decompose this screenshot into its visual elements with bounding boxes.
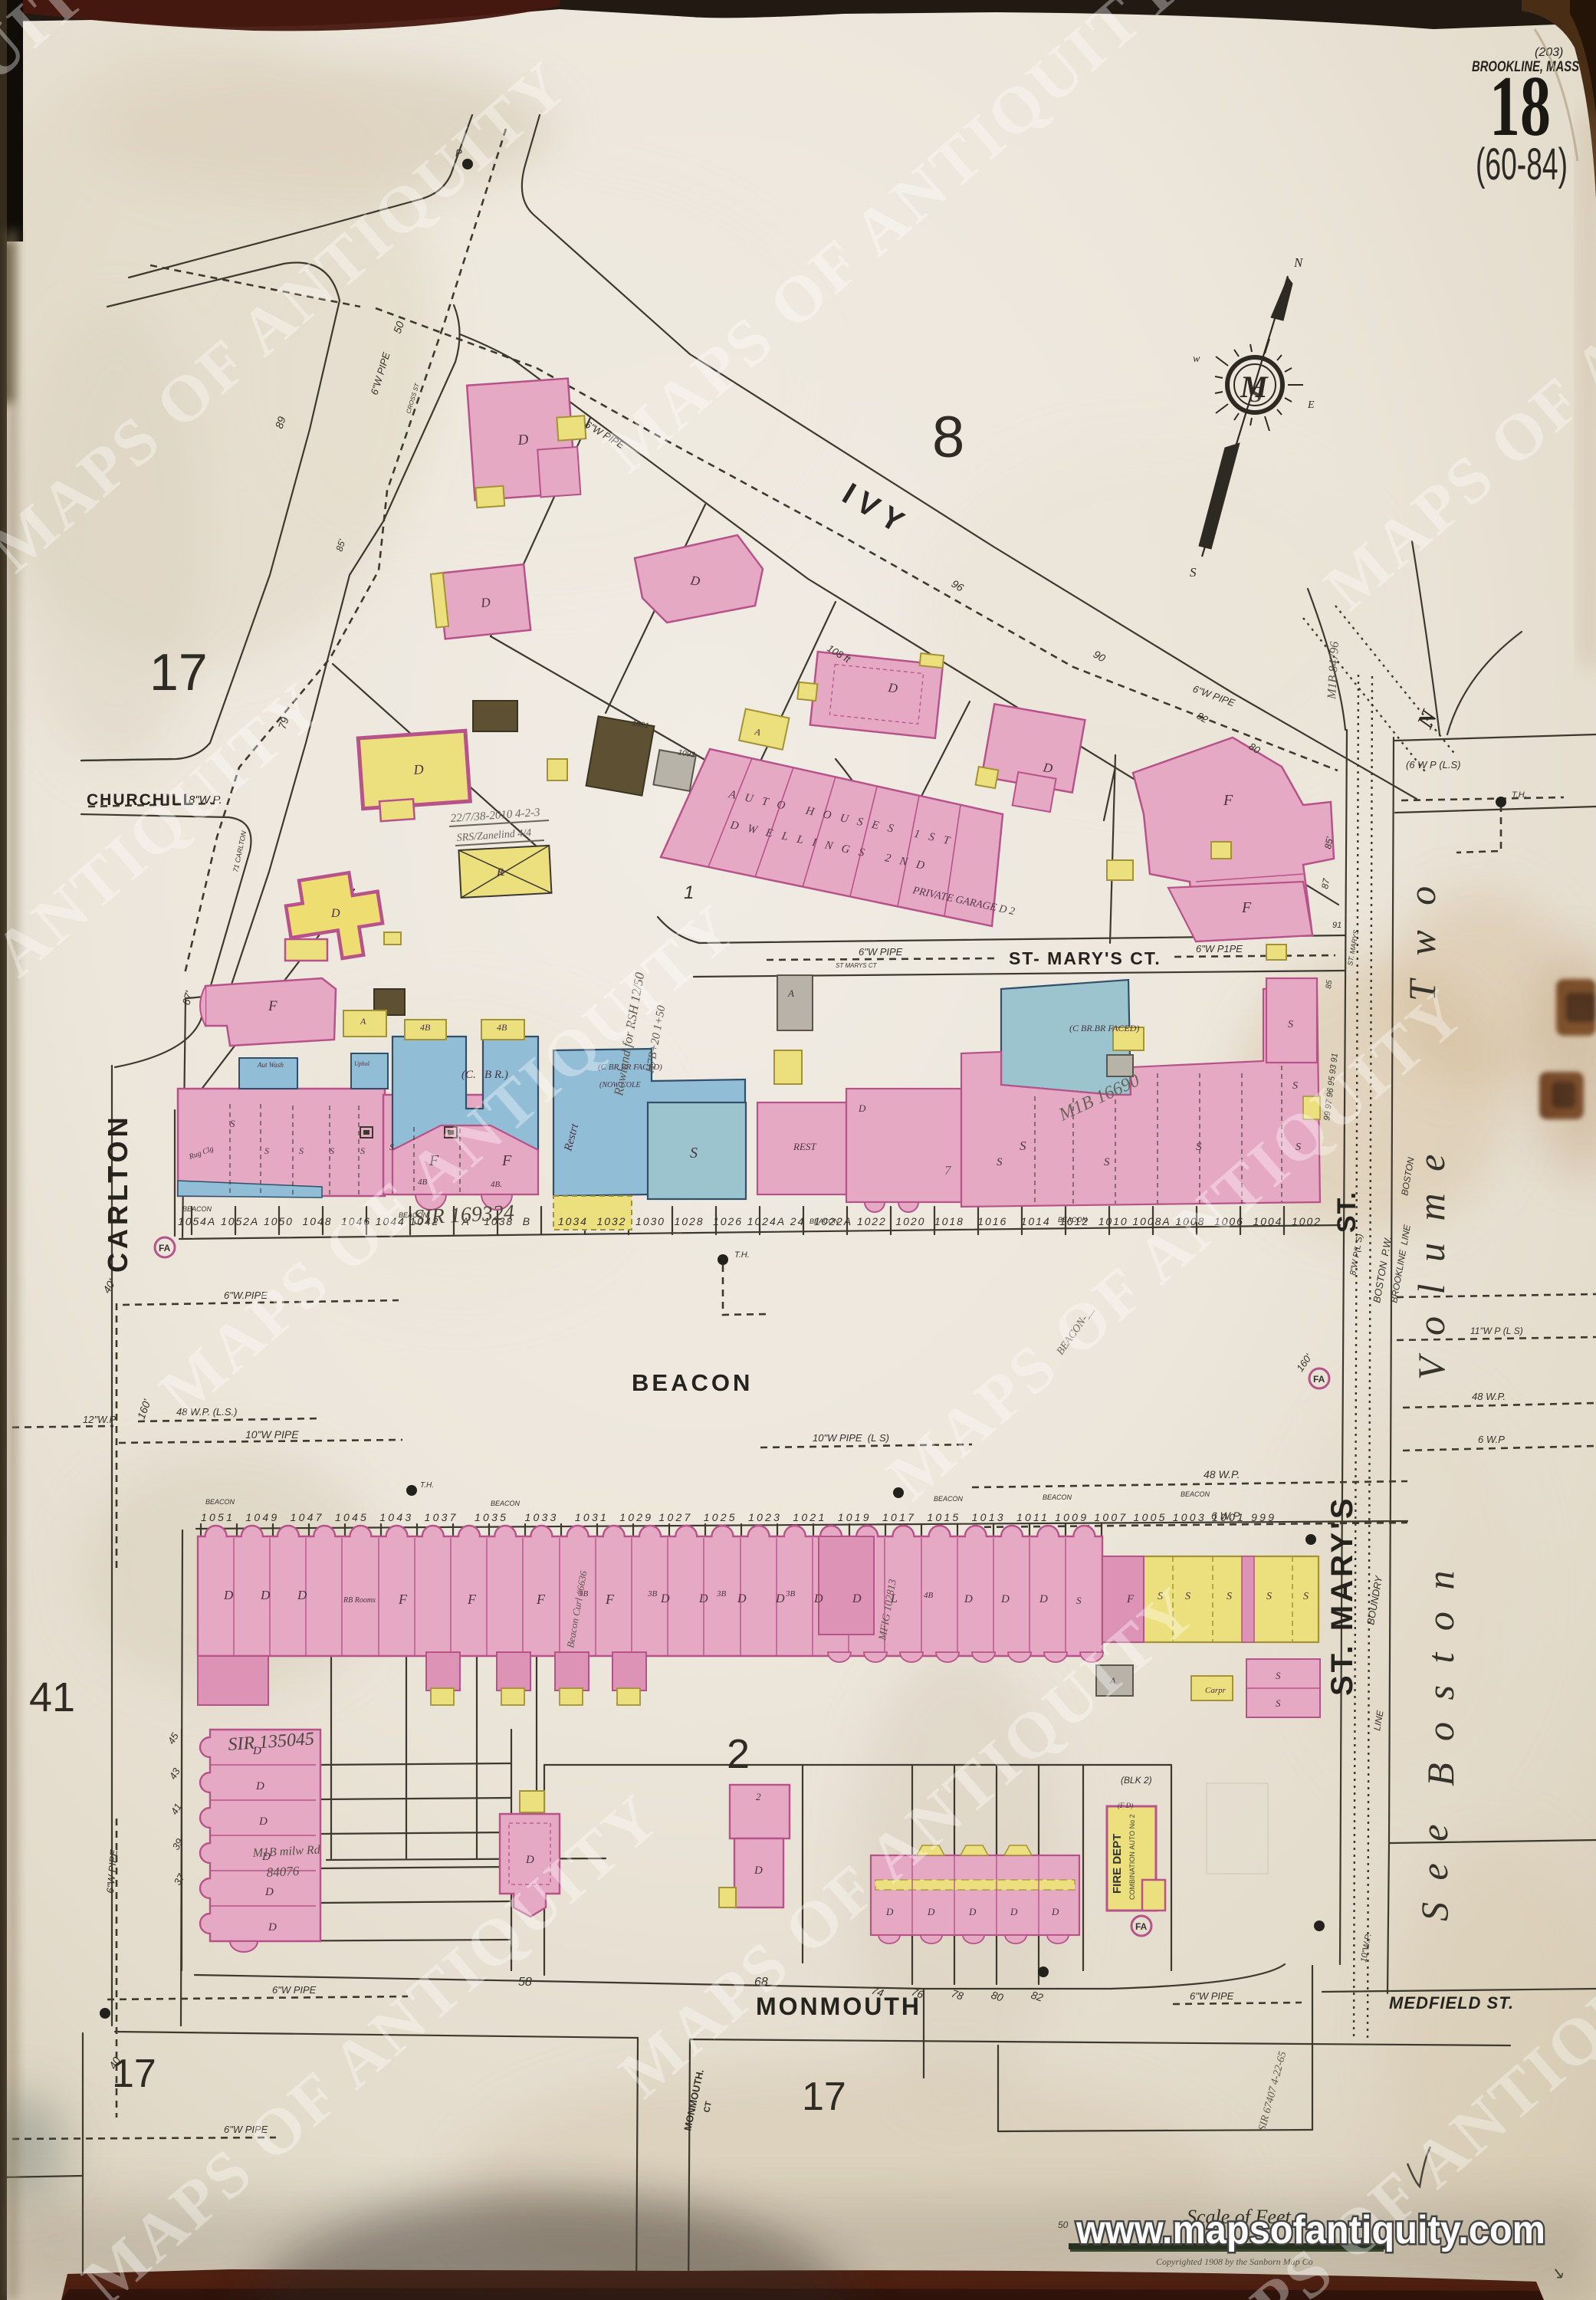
svg-text:S: S — [1276, 1697, 1281, 1709]
svg-text:BEACON: BEACON — [1043, 1493, 1072, 1501]
svg-text:F: F — [1223, 792, 1233, 809]
svg-text:F: F — [536, 1592, 546, 1607]
svg-text:BEACON: BEACON — [1181, 1490, 1210, 1498]
svg-text:A: A — [787, 987, 794, 999]
svg-text:BEACON: BEACON — [1058, 1216, 1088, 1224]
svg-text:REST: REST — [793, 1141, 816, 1152]
svg-text:A: A — [360, 1016, 366, 1027]
svg-text:S: S — [264, 1145, 269, 1156]
svg-text:T.H.: T.H. — [1512, 790, 1527, 800]
svg-text:BEACON: BEACON — [809, 1217, 839, 1225]
svg-text:BEACON: BEACON — [182, 1205, 212, 1213]
svg-text:6 W.P: 6 W.P — [1478, 1434, 1505, 1445]
svg-text:T.H.: T.H. — [420, 1481, 434, 1490]
svg-text:S: S — [690, 1145, 698, 1161]
svg-text:2: 2 — [756, 1791, 761, 1802]
svg-text:D: D — [1039, 1593, 1048, 1605]
svg-text:D: D — [1051, 1906, 1059, 1917]
svg-text:48 W.P.: 48 W.P. — [1204, 1468, 1240, 1480]
svg-text:2: 2 — [727, 1731, 750, 1777]
svg-text:BROOKLINE, MASS: BROOKLINE, MASS — [1472, 59, 1579, 75]
svg-text:12"W.P: 12"W.P — [83, 1414, 116, 1425]
svg-text:Uphol: Uphol — [354, 1060, 370, 1067]
svg-text:S: S — [1266, 1591, 1272, 1602]
svg-text:1051 1049 1047 1045 1043: 1051 1049 1047 1045 1043 1037 1035 1033 … — [201, 1511, 1274, 1523]
svg-text:S: S — [330, 1145, 334, 1156]
svg-text:F: F — [1241, 899, 1252, 916]
svg-text:85': 85' — [1322, 836, 1335, 850]
svg-text:S: S — [1303, 1591, 1309, 1602]
svg-text:D: D — [297, 1588, 307, 1602]
svg-text:BEACON: BEACON — [632, 1369, 753, 1396]
svg-text:4B: 4B — [420, 1022, 431, 1033]
svg-text:N: N — [1293, 255, 1304, 270]
svg-text:S: S — [389, 1142, 394, 1152]
svg-text:S: S — [1104, 1156, 1110, 1168]
svg-text:D: D — [754, 1865, 763, 1877]
svg-text:85: 85 — [1325, 980, 1334, 990]
svg-text:(6 W P (L.S): (6 W P (L.S) — [1406, 759, 1461, 770]
svg-text:(F D): (F D) — [1118, 1802, 1133, 1809]
svg-text:ST MARYS CT: ST MARYS CT — [836, 962, 878, 969]
svg-text:D: D — [964, 1593, 973, 1605]
svg-text:S: S — [1288, 1019, 1293, 1030]
svg-text:CARLTON: CARLTON — [102, 1113, 133, 1273]
svg-text:S: S — [1196, 1141, 1202, 1153]
svg-text:S: S — [230, 1118, 235, 1129]
svg-text:D: D — [858, 1102, 866, 1114]
svg-text:D: D — [268, 1921, 277, 1934]
svg-text:D: D — [264, 1886, 274, 1898]
svg-text:COMBINATION AUTO No 2: COMBINATION AUTO No 2 — [1128, 1814, 1136, 1900]
svg-text:F: F — [398, 1592, 408, 1607]
svg-text:17: 17 — [149, 643, 208, 701]
svg-text:(60-84): (60-84) — [1476, 140, 1568, 189]
svg-text:D: D — [1010, 1906, 1018, 1917]
svg-text:V o l u m e: V o l u m e — [1410, 1148, 1453, 1380]
svg-text:41: 41 — [29, 1674, 75, 1720]
svg-text:S: S — [1227, 1591, 1232, 1602]
svg-text:T.H.: T.H. — [734, 1250, 750, 1260]
svg-text:FA: FA — [1135, 1921, 1148, 1932]
svg-text:D: D — [698, 1592, 708, 1605]
svg-text:S: S — [299, 1145, 304, 1156]
svg-text:D: D — [852, 1592, 862, 1605]
svg-text:F: F — [268, 998, 277, 1014]
svg-text:B o s t o n: B o s t o n — [1419, 1565, 1462, 1786]
svg-text:4B.: 4B. — [491, 1180, 502, 1189]
svg-text:58: 58 — [518, 1976, 532, 1989]
svg-text:R: R — [496, 866, 504, 879]
svg-text:4B: 4B — [497, 1022, 507, 1033]
svg-text:D: D — [258, 1815, 268, 1828]
svg-text:D: D — [1000, 1593, 1010, 1605]
svg-text:D: D — [968, 1906, 977, 1917]
svg-text:ST. MARY'S: ST. MARY'S — [1325, 1496, 1359, 1696]
svg-text:FA: FA — [1313, 1374, 1325, 1385]
svg-text:D: D — [260, 1588, 271, 1602]
svg-text:10"W PIPE (L S): 10"W PIPE (L S) — [813, 1432, 889, 1444]
svg-text:F: F — [467, 1592, 477, 1607]
svg-text:D: D — [517, 432, 529, 449]
svg-text:D: D — [223, 1588, 234, 1602]
svg-text:91: 91 — [1332, 921, 1341, 930]
svg-text:D: D — [927, 1906, 935, 1917]
svg-text:48 W.P.: 48 W.P. — [1472, 1391, 1506, 1402]
svg-text:6"W P1PE: 6"W P1PE — [1196, 943, 1243, 955]
svg-text:D: D — [412, 761, 424, 777]
svg-text:Carpr: Carpr — [1205, 1686, 1227, 1695]
svg-text:E: E — [1307, 399, 1315, 411]
svg-text:3B: 3B — [716, 1589, 727, 1598]
svg-text:6"W PIPE: 6"W PIPE — [272, 1984, 317, 1996]
svg-text:S: S — [997, 1156, 1003, 1168]
svg-text:S: S — [1190, 565, 1197, 580]
svg-text:BEACON: BEACON — [205, 1498, 235, 1506]
svg-text:(C BR.BR FACED): (C BR.BR FACED) — [1069, 1023, 1139, 1033]
svg-text:BEACON: BEACON — [491, 1500, 521, 1507]
svg-text:Aut Wash: Aut Wash — [257, 1061, 284, 1069]
svg-text:D: D — [330, 907, 340, 920]
svg-text:ST.: ST. — [1332, 1191, 1361, 1233]
svg-text:D: D — [813, 1592, 823, 1605]
svg-text:8: 8 — [932, 405, 964, 470]
svg-text:S: S — [360, 1145, 365, 1156]
svg-text:6"W PIPE: 6"W PIPE — [859, 946, 903, 958]
svg-text:S: S — [1276, 1670, 1281, 1681]
svg-text:FA: FA — [159, 1243, 171, 1253]
svg-text:w: w — [1193, 353, 1200, 365]
svg-text:S: S — [1020, 1138, 1026, 1153]
svg-text:84076: 84076 — [266, 1864, 300, 1880]
svg-text:RB Rooms: RB Rooms — [343, 1596, 376, 1605]
svg-text:(BLK 2): (BLK 2) — [1121, 1775, 1152, 1786]
svg-text:S: S — [1250, 382, 1263, 407]
svg-text:10"W PIPE: 10"W PIPE — [245, 1428, 299, 1441]
svg-text:F: F — [605, 1592, 615, 1607]
svg-text:17: 17 — [802, 2075, 846, 2119]
svg-text:S: S — [1076, 1595, 1082, 1606]
svg-text:ST- MARY'S CT.: ST- MARY'S CT. — [1009, 948, 1161, 968]
svg-text:D: D — [775, 1592, 785, 1605]
svg-text:D: D — [660, 1592, 670, 1605]
svg-text:6"W PIPE: 6"W PIPE — [1190, 1990, 1234, 2002]
svg-text:S e e: S e e — [1413, 1819, 1456, 1921]
svg-text:MEDFIELD ST.: MEDFIELD ST. — [1389, 1993, 1514, 2013]
svg-text:11"W P (L S): 11"W P (L S) — [1470, 1326, 1523, 1336]
svg-text:3B: 3B — [647, 1589, 658, 1598]
svg-text:3B: 3B — [785, 1589, 796, 1598]
svg-text:6 W.P.: 6 W.P. — [1211, 1510, 1242, 1522]
svg-text:www.mapsofantiquity.com: www.mapsofantiquity.com — [1075, 2208, 1545, 2252]
svg-text:4B: 4B — [924, 1591, 934, 1600]
svg-text:D: D — [737, 1592, 747, 1605]
svg-text:D: D — [255, 1780, 264, 1792]
svg-text:FIRE DEPT: FIRE DEPT — [1111, 1834, 1124, 1894]
